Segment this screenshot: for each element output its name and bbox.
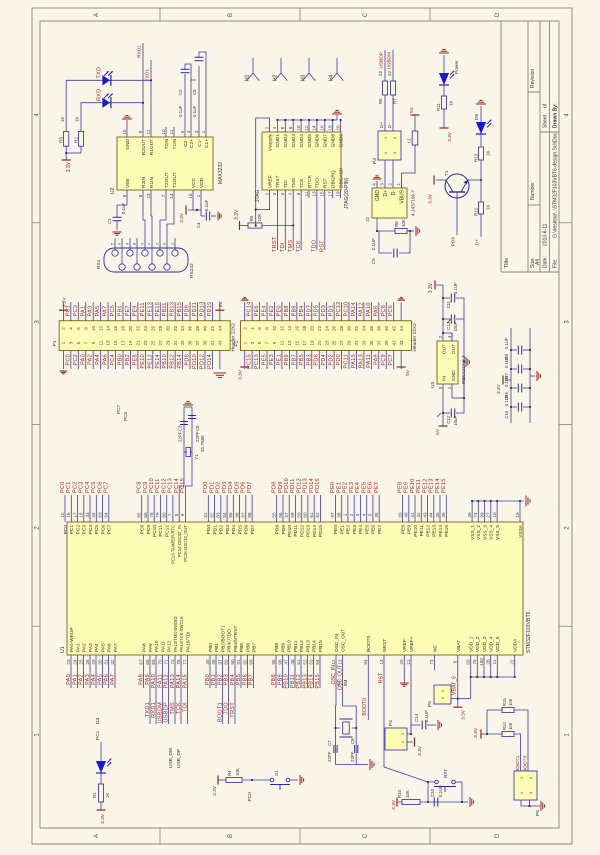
svg-text:PD0: PD0 — [206, 525, 212, 535]
svg-text:99: 99 — [479, 512, 484, 518]
svg-text:40: 40 — [384, 326, 389, 332]
svg-text:9: 9 — [296, 192, 301, 195]
svg-text:14: 14 — [106, 326, 111, 332]
svg-text:39: 39 — [203, 340, 208, 346]
svg-text:R14: R14 — [502, 722, 507, 730]
svg-text:BOOT0: BOOT0 — [523, 755, 529, 772]
svg-text:21: 21 — [136, 340, 141, 346]
svg-text:PD5: PD5 — [314, 305, 320, 317]
svg-text:PA9: PA9 — [148, 643, 154, 652]
svg-text:39: 39 — [397, 512, 402, 518]
svg-text:PE12: PE12 — [425, 525, 431, 537]
svg-text:2010-6-11: 2010-6-11 — [543, 223, 549, 246]
svg-text:29: 29 — [347, 340, 352, 346]
svg-text:C7: C7 — [327, 740, 332, 746]
svg-text:33: 33 — [85, 512, 90, 518]
svg-text:53: 53 — [308, 659, 313, 665]
svg-text:4: 4 — [272, 126, 277, 129]
svg-text:PC14: PC14 — [247, 302, 253, 317]
svg-text:58: 58 — [290, 512, 295, 518]
svg-text:20: 20 — [399, 659, 404, 665]
svg-text:0.1UF: 0.1UF — [453, 282, 458, 294]
svg-text:PB11: PB11 — [293, 640, 299, 652]
svg-text:41: 41 — [391, 340, 396, 346]
svg-text:8: 8 — [288, 126, 293, 129]
svg-text:64: 64 — [104, 512, 109, 518]
svg-text:PE2: PE2 — [346, 525, 352, 534]
svg-text:13: 13 — [146, 193, 151, 199]
svg-text:PD11: PD11 — [192, 302, 198, 317]
svg-text:PD5: PD5 — [237, 525, 243, 535]
svg-text:R2OUT: R2OUT — [141, 139, 147, 155]
svg-text:C10: C10 — [430, 788, 435, 797]
svg-text:PC7: PC7 — [107, 525, 113, 535]
svg-text:C12: C12 — [446, 415, 451, 423]
svg-text:RXD1: RXD1 — [151, 702, 157, 718]
svg-text:Drawn By:: Drawn By: — [553, 103, 559, 128]
svg-text:C11: C11 — [446, 300, 451, 308]
svg-text:PA13/TMS-SWDIO: PA13/TMS-SWDIO — [173, 616, 178, 652]
svg-text:12: 12 — [98, 326, 103, 332]
svg-text:PC6: PC6 — [100, 525, 106, 535]
svg-text:PC10: PC10 — [344, 302, 350, 317]
svg-text:PA13: PA13 — [358, 354, 364, 368]
svg-text:2: 2 — [349, 513, 354, 516]
svg-text:PD12: PD12 — [297, 478, 303, 493]
svg-text:38: 38 — [376, 326, 381, 332]
svg-text:VDD_1: VDD_1 — [469, 636, 475, 652]
svg-text:68: 68 — [145, 659, 150, 665]
svg-text:1: 1 — [447, 386, 452, 389]
svg-text:GND8: GND8 — [331, 134, 337, 148]
svg-text:PD12: PD12 — [199, 354, 205, 369]
svg-text:30: 30 — [165, 326, 170, 332]
svg-text:C1-: C1- — [197, 139, 203, 147]
svg-text:81: 81 — [203, 512, 208, 518]
svg-text:D+: D+ — [475, 239, 481, 245]
svg-text:R15: R15 — [502, 698, 507, 706]
svg-text:3.3V: 3.3V — [212, 785, 218, 796]
svg-text:3.3V: 3.3V — [428, 193, 434, 204]
svg-text:10K: 10K — [257, 214, 262, 222]
svg-text:PE7: PE7 — [374, 482, 380, 493]
svg-text:C1+: C1+ — [204, 139, 210, 148]
svg-text:PB6: PB6 — [245, 643, 251, 652]
svg-text:PB12: PB12 — [299, 640, 305, 652]
svg-text:PA5: PA5 — [100, 643, 106, 652]
svg-text:GND9: GND9 — [338, 134, 344, 148]
svg-text:30: 30 — [97, 659, 102, 665]
svg-text:PA12: PA12 — [358, 302, 364, 316]
svg-text:PC9: PC9 — [146, 525, 152, 535]
svg-text:PB14: PB14 — [308, 674, 314, 689]
svg-text:PD10: PD10 — [192, 354, 198, 369]
svg-text:D+: D+ — [379, 122, 385, 128]
svg-text:PE5: PE5 — [362, 482, 368, 493]
svg-text:TCK: TCK — [296, 240, 302, 252]
svg-text:PE12: PE12 — [147, 354, 153, 369]
svg-text:37: 37 — [217, 659, 222, 665]
svg-text:31: 31 — [173, 340, 178, 346]
svg-text:P2: P2 — [234, 340, 240, 346]
svg-text:3.3V: 3.3V — [100, 813, 106, 824]
svg-text:PB11: PB11 — [162, 302, 168, 316]
svg-text:5: 5 — [368, 513, 373, 516]
svg-text:MAX3232: MAX3232 — [218, 162, 224, 184]
svg-text:PC11: PC11 — [155, 478, 161, 493]
svg-text:PB2/BOOT1: PB2/BOOT1 — [220, 625, 226, 652]
svg-text:21: 21 — [406, 659, 411, 665]
svg-text:18: 18 — [302, 326, 307, 332]
svg-text:PC8: PC8 — [381, 305, 387, 317]
svg-text:43: 43 — [422, 512, 427, 518]
svg-text:16: 16 — [188, 193, 193, 199]
svg-text:37: 37 — [376, 340, 381, 346]
svg-text:46: 46 — [441, 512, 446, 518]
svg-text:PE4: PE4 — [358, 525, 364, 534]
svg-text:10: 10 — [492, 512, 497, 518]
svg-text:TXD: TXD — [97, 67, 103, 79]
svg-text:10: 10 — [161, 129, 166, 135]
svg-text:54: 54 — [315, 659, 320, 665]
svg-text:TMS: TMS — [291, 178, 297, 188]
svg-text:VBAT: VBAT — [456, 640, 462, 652]
svg-text:35: 35 — [188, 340, 193, 346]
svg-text:PE15: PE15 — [444, 525, 450, 537]
svg-text:DBGACK: DBGACK — [338, 167, 344, 188]
svg-text:PE3: PE3 — [349, 482, 355, 493]
svg-text:Number: Number — [530, 182, 536, 200]
svg-text:PC12: PC12 — [165, 525, 171, 537]
svg-text:VREF+: VREF+ — [409, 636, 415, 652]
svg-text:32: 32 — [173, 326, 178, 332]
svg-text:PD15: PD15 — [315, 478, 321, 493]
svg-text:Revision: Revision — [530, 69, 536, 88]
svg-text:C1: C1 — [107, 218, 112, 224]
svg-text:VSS_1: VSS_1 — [470, 525, 476, 540]
svg-text:3: 3 — [272, 192, 277, 195]
svg-text:PA15: PA15 — [351, 354, 357, 368]
svg-text:43: 43 — [217, 340, 222, 346]
svg-text:38: 38 — [374, 512, 379, 518]
svg-text:PE8: PE8 — [400, 525, 406, 534]
svg-text:GND7: GND7 — [323, 134, 329, 148]
svg-text:R1IN: R1IN — [149, 177, 155, 188]
svg-text:13: 13 — [287, 340, 292, 346]
svg-text:17: 17 — [328, 191, 333, 197]
svg-text:35: 35 — [369, 340, 374, 346]
svg-text:11: 11 — [98, 340, 103, 345]
svg-text:35: 35 — [205, 659, 210, 665]
svg-text:PB9: PB9 — [280, 643, 286, 652]
svg-text:PD6: PD6 — [314, 354, 320, 366]
svg-text:C: C — [363, 833, 369, 838]
svg-text:PA2: PA2 — [88, 354, 94, 365]
svg-text:PD6: PD6 — [241, 481, 247, 493]
svg-text:PC1: PC1 — [69, 525, 75, 535]
svg-text:12: 12 — [146, 129, 151, 135]
svg-text:PE1: PE1 — [340, 525, 346, 534]
svg-text:PD7: PD7 — [250, 525, 256, 535]
svg-text:3.3V: 3.3V — [447, 131, 453, 142]
svg-text:PA8: PA8 — [373, 306, 379, 317]
svg-text:PD8: PD8 — [185, 354, 191, 366]
svg-text:G:\desktop\..\STM32F103VBT6-de: G:\desktop\..\STM32F103VBT6-design.SchDo… — [553, 132, 559, 238]
svg-text:P3: P3 — [372, 158, 378, 164]
svg-text:34: 34 — [91, 512, 96, 518]
svg-text:P5: P5 — [427, 701, 433, 707]
svg-text:H1: H1 — [245, 74, 251, 81]
svg-text:PA12: PA12 — [166, 640, 172, 652]
svg-text:45: 45 — [435, 512, 440, 518]
svg-text:1: 1 — [396, 183, 401, 186]
svg-text:D5: D5 — [474, 114, 480, 120]
svg-text:26: 26 — [85, 659, 90, 665]
svg-text:GND3: GND3 — [291, 134, 297, 148]
svg-text:T1IN: T1IN — [172, 138, 178, 149]
svg-text:22: 22 — [378, 71, 383, 76]
svg-text:PA0-WKUP: PA0-WKUP — [69, 627, 75, 652]
svg-text:PE15: PE15 — [441, 478, 447, 493]
svg-text:PC2: PC2 — [72, 481, 78, 493]
svg-text:PE6: PE6 — [368, 482, 374, 493]
svg-text:57: 57 — [284, 512, 289, 518]
svg-text:25: 25 — [332, 340, 337, 346]
svg-text:GND5: GND5 — [307, 134, 313, 148]
svg-text:11: 11 — [280, 340, 285, 345]
svg-text:10K: 10K — [405, 790, 410, 798]
svg-text:72: 72 — [170, 659, 175, 665]
svg-text:PC3: PC3 — [73, 305, 79, 317]
svg-text:PD14: PD14 — [312, 525, 318, 537]
svg-text:85: 85 — [228, 512, 233, 518]
svg-text:PD3: PD3 — [222, 481, 228, 493]
svg-text:J2: J2 — [365, 217, 371, 222]
svg-text:63: 63 — [97, 512, 102, 518]
svg-text:C3: C3 — [178, 425, 183, 431]
svg-text:22PF: 22PF — [350, 751, 355, 762]
svg-text:D3: D3 — [95, 718, 101, 724]
svg-text:PC9: PC9 — [381, 354, 387, 366]
svg-text:R11: R11 — [436, 103, 441, 111]
svg-text:73: 73 — [429, 659, 434, 665]
svg-text:USB_DP: USB_DP — [176, 749, 182, 768]
svg-text:10uF: 10uF — [453, 322, 458, 332]
svg-text:VDDA: VDDA — [513, 638, 519, 652]
svg-text:3.3V: 3.3V — [461, 709, 467, 720]
svg-text:12: 12 — [331, 659, 336, 665]
svg-text:B: B — [228, 834, 234, 838]
svg-text:PC14-OSC32_IN: PC14-OSC32_IN — [177, 525, 182, 557]
svg-text:PB10: PB10 — [286, 640, 292, 652]
svg-text:VSS_4: VSS_4 — [489, 525, 495, 540]
svg-text:C2: C2 — [178, 89, 183, 95]
svg-text:PE10: PE10 — [413, 525, 419, 537]
svg-text:14: 14 — [379, 659, 384, 665]
svg-text:28: 28 — [158, 326, 163, 332]
svg-text:4: 4 — [372, 183, 377, 186]
svg-text:PD2: PD2 — [219, 525, 225, 535]
svg-text:33: 33 — [362, 340, 367, 346]
svg-text:0.1uF: 0.1uF — [204, 199, 209, 211]
svg-text:C9: C9 — [371, 258, 376, 264]
svg-text:60: 60 — [303, 512, 308, 518]
svg-text:PA4: PA4 — [94, 643, 100, 652]
svg-text:D-: D- — [387, 123, 393, 128]
svg-text:U3: U3 — [430, 382, 436, 388]
svg-text:R3: R3 — [59, 137, 64, 143]
svg-text:40: 40 — [203, 326, 208, 332]
svg-text:PB10: PB10 — [162, 354, 168, 369]
svg-text:PA10: PA10 — [151, 674, 157, 688]
svg-text:7: 7 — [161, 194, 166, 197]
svg-text:PE9: PE9 — [407, 525, 413, 534]
svg-text:VSS_5: VSS_5 — [495, 525, 501, 540]
svg-text:90: 90 — [230, 659, 235, 665]
svg-text:PD3: PD3 — [321, 305, 327, 317]
svg-text:22PF: 22PF — [178, 431, 183, 442]
svg-text:25: 25 — [78, 659, 83, 665]
svg-text:7: 7 — [288, 192, 293, 195]
svg-text:VBUS: VBUS — [399, 189, 405, 203]
svg-text:OUT: OUT — [451, 344, 457, 354]
svg-text:Y1: Y1 — [194, 454, 199, 460]
svg-text:C17: C17 — [504, 372, 509, 380]
svg-text:PD3: PD3 — [225, 525, 231, 535]
svg-text:C15: C15 — [504, 410, 509, 418]
svg-text:6: 6 — [453, 660, 458, 663]
svg-text:PA8: PA8 — [141, 643, 147, 652]
svg-text:R12: R12 — [474, 207, 479, 216]
svg-text:44: 44 — [429, 512, 434, 518]
svg-text:27: 27 — [158, 340, 163, 346]
svg-text:VEE: VEE — [125, 178, 131, 188]
svg-text:23: 23 — [66, 659, 71, 665]
svg-text:TCK: TCK — [176, 702, 182, 714]
svg-text:PC5: PC5 — [91, 481, 97, 493]
svg-text:4: 4 — [186, 130, 191, 133]
svg-text:NC: NC — [432, 645, 438, 652]
svg-text:VCC: VCC — [191, 177, 197, 188]
svg-text:PB5: PB5 — [299, 354, 305, 365]
svg-text:98: 98 — [337, 512, 342, 518]
svg-text:PC3: PC3 — [82, 525, 88, 535]
svg-text:5V: 5V — [435, 428, 441, 435]
svg-text:44: 44 — [399, 326, 404, 332]
svg-text:PC0: PC0 — [63, 525, 69, 535]
svg-text:69: 69 — [151, 659, 156, 665]
svg-text:PD2: PD2 — [216, 481, 222, 493]
svg-text:of: of — [543, 103, 549, 108]
svg-text:RXD: RXD — [97, 88, 103, 101]
svg-text:3.3V: 3.3V — [428, 282, 434, 293]
svg-text:27: 27 — [339, 340, 344, 346]
svg-text:TRST: TRST — [272, 236, 278, 252]
svg-text:32: 32 — [110, 659, 115, 665]
svg-text:PC0: PC0 — [247, 792, 253, 802]
svg-text:89: 89 — [223, 659, 228, 665]
svg-text:C2+: C2+ — [189, 139, 195, 148]
svg-text:PB12: PB12 — [170, 354, 176, 369]
svg-text:0.1uF: 0.1uF — [178, 105, 183, 117]
svg-text:62: 62 — [315, 512, 320, 518]
svg-text:PE3: PE3 — [269, 354, 275, 365]
svg-text:PB1: PB1 — [118, 305, 124, 316]
svg-text:78: 78 — [149, 512, 154, 518]
svg-text:PA7: PA7 — [113, 643, 119, 652]
svg-text:42: 42 — [391, 326, 396, 332]
svg-text:24: 24 — [324, 326, 329, 332]
svg-text:16: 16 — [320, 125, 325, 131]
svg-text:22: 22 — [317, 326, 322, 332]
svg-text:0.1UF: 0.1UF — [438, 785, 443, 797]
svg-text:PE10: PE10 — [410, 478, 416, 493]
svg-text:PB5: PB5 — [236, 674, 242, 685]
svg-text:65: 65 — [137, 512, 142, 518]
svg-text:H2: H2 — [273, 74, 279, 81]
svg-text:PB0: PB0 — [208, 643, 214, 652]
svg-text:26: 26 — [150, 326, 155, 332]
svg-text:74: 74 — [473, 512, 478, 518]
svg-text:RTCK: RTCK — [307, 174, 313, 188]
svg-text:RST: RST — [323, 178, 329, 188]
svg-text:TDI: TDI — [280, 242, 286, 252]
svg-text:PB8: PB8 — [271, 674, 277, 685]
svg-text:Title: Title — [504, 258, 510, 268]
svg-text:70: 70 — [157, 659, 162, 665]
svg-text:RS1: RS1 — [96, 259, 102, 269]
svg-text:USBDP: USBDP — [379, 52, 385, 69]
svg-text:PB6: PB6 — [291, 305, 297, 316]
svg-text:28: 28 — [486, 659, 491, 665]
svg-text:48: 48 — [290, 659, 295, 665]
svg-text:32.768K: 32.768K — [200, 434, 205, 452]
svg-text:PE13: PE13 — [429, 478, 435, 493]
svg-text:84: 84 — [222, 512, 227, 518]
svg-text:PB10: PB10 — [283, 674, 289, 689]
svg-text:PE11: PE11 — [419, 525, 425, 537]
svg-text:PC4: PC4 — [110, 354, 116, 366]
svg-text:79: 79 — [155, 512, 160, 518]
svg-text:PD13: PD13 — [199, 302, 205, 317]
svg-text:24: 24 — [72, 659, 77, 665]
svg-text:27: 27 — [486, 512, 491, 518]
svg-text:3.3V: 3.3V — [66, 161, 72, 172]
svg-text:PC6: PC6 — [97, 481, 103, 493]
svg-text:21: 21 — [317, 340, 322, 346]
svg-text:40: 40 — [404, 512, 409, 518]
svg-text:C8: C8 — [350, 738, 355, 744]
svg-text:PB7: PB7 — [251, 643, 257, 652]
svg-text:77: 77 — [182, 659, 187, 665]
svg-text:43: 43 — [399, 340, 404, 346]
svg-text:R8: R8 — [394, 221, 399, 227]
svg-text:PB7: PB7 — [248, 674, 254, 685]
svg-text:95: 95 — [271, 659, 276, 665]
svg-text:PE6: PE6 — [371, 525, 377, 534]
svg-text:67: 67 — [138, 659, 143, 665]
svg-text:GND6: GND6 — [315, 134, 321, 148]
svg-text:44: 44 — [217, 326, 222, 332]
svg-text:11: 11 — [492, 659, 497, 664]
svg-text:PE10: PE10 — [140, 354, 146, 369]
svg-text:BOOT1: BOOT1 — [515, 755, 521, 772]
svg-text:3: 3 — [380, 183, 385, 186]
svg-text:18: 18 — [328, 125, 333, 131]
svg-text:22PF: 22PF — [195, 431, 200, 442]
svg-text:PB3/JTDO: PB3/JTDO — [226, 629, 232, 652]
svg-text:5V: 5V — [218, 301, 224, 308]
